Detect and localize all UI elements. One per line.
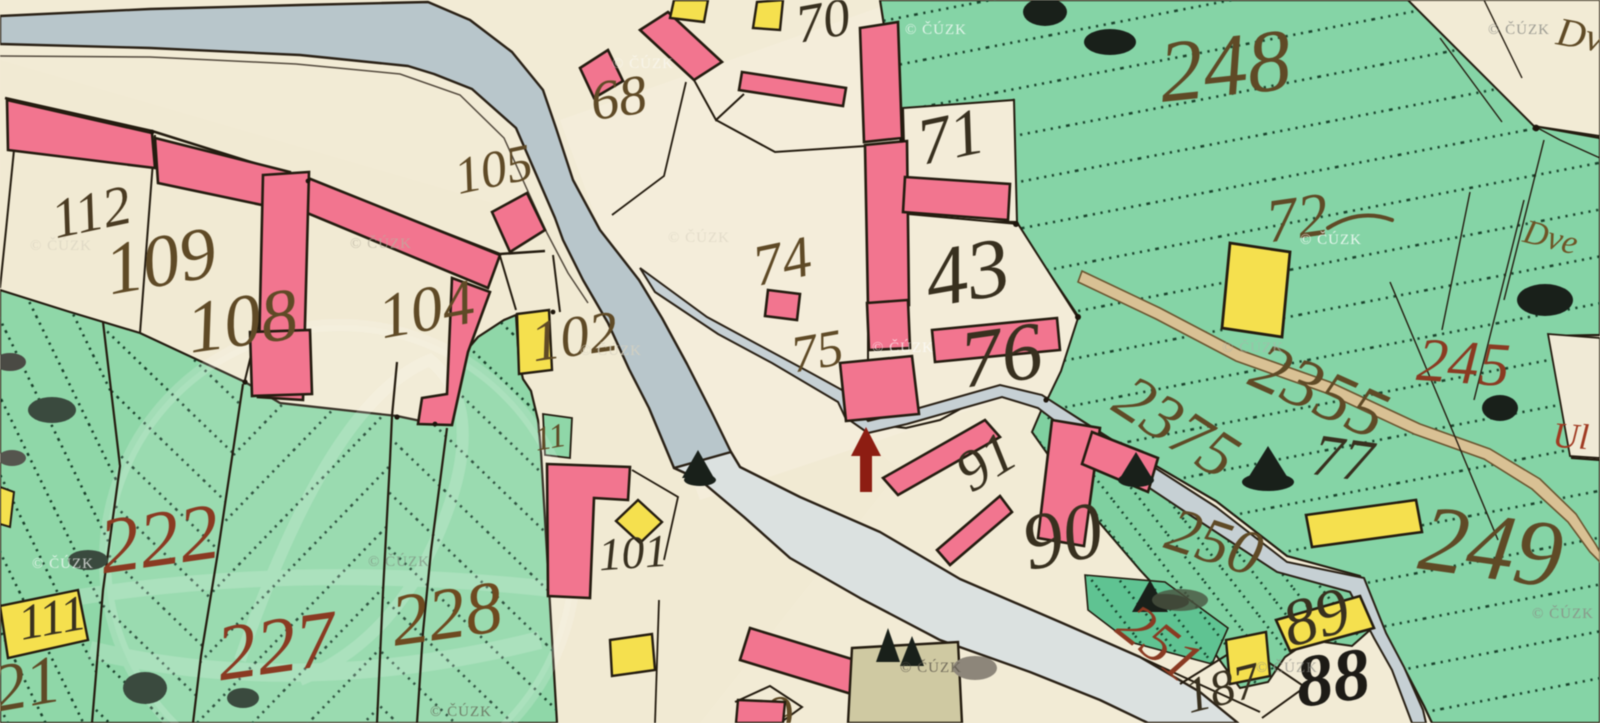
svg-text:Ul: Ul — [1551, 415, 1590, 457]
svg-text:68: 68 — [587, 64, 651, 133]
svg-text:© ČÚZK: © ČÚZK — [668, 229, 730, 246]
svg-text:76: 76 — [954, 304, 1048, 406]
svg-text:© ČÚZK: © ČÚZK — [1300, 231, 1362, 248]
svg-text:© ČÚZK: © ČÚZK — [1488, 21, 1550, 38]
svg-text:101: 101 — [597, 525, 669, 581]
svg-text:249: 249 — [1414, 484, 1570, 609]
svg-text:© ČÚZK: © ČÚZK — [350, 235, 412, 252]
svg-text:© ČÚZK: © ČÚZK — [612, 55, 674, 72]
svg-text:227: 227 — [211, 594, 345, 698]
svg-text:© ČÚZK: © ČÚZK — [1532, 605, 1594, 622]
svg-text:70: 70 — [791, 0, 855, 55]
svg-text:77: 77 — [1308, 421, 1380, 495]
svg-text:© ČÚZK: © ČÚZK — [32, 555, 94, 572]
svg-text:© ČÚZK: © ČÚZK — [368, 553, 430, 570]
svg-text:245: 245 — [1415, 326, 1513, 400]
svg-text:248: 248 — [1154, 12, 1295, 122]
svg-text:228: 228 — [386, 566, 507, 663]
svg-text:Dv: Dv — [1552, 8, 1600, 61]
svg-text:© ČÚZK: © ČÚZK — [30, 237, 92, 254]
svg-text:11: 11 — [531, 417, 568, 459]
svg-text:222: 222 — [94, 487, 225, 591]
svg-text:© ČÚZK: © ČÚZK — [430, 703, 492, 720]
svg-text:© ČÚZK: © ČÚZK — [905, 21, 967, 38]
svg-text:© ČÚZK: © ČÚZK — [1256, 659, 1318, 676]
svg-text:88: 88 — [1290, 632, 1375, 723]
svg-text:108: 108 — [182, 273, 303, 370]
svg-text:© ČÚZK: © ČÚZK — [1222, 339, 1284, 356]
svg-text:© ČÚZK: © ČÚZK — [900, 659, 962, 676]
svg-text:© ČÚZK: © ČÚZK — [872, 339, 934, 356]
svg-text:© ČÚZK: © ČÚZK — [580, 342, 642, 359]
svg-text:102: 102 — [527, 298, 622, 374]
svg-text:75: 75 — [787, 319, 848, 384]
